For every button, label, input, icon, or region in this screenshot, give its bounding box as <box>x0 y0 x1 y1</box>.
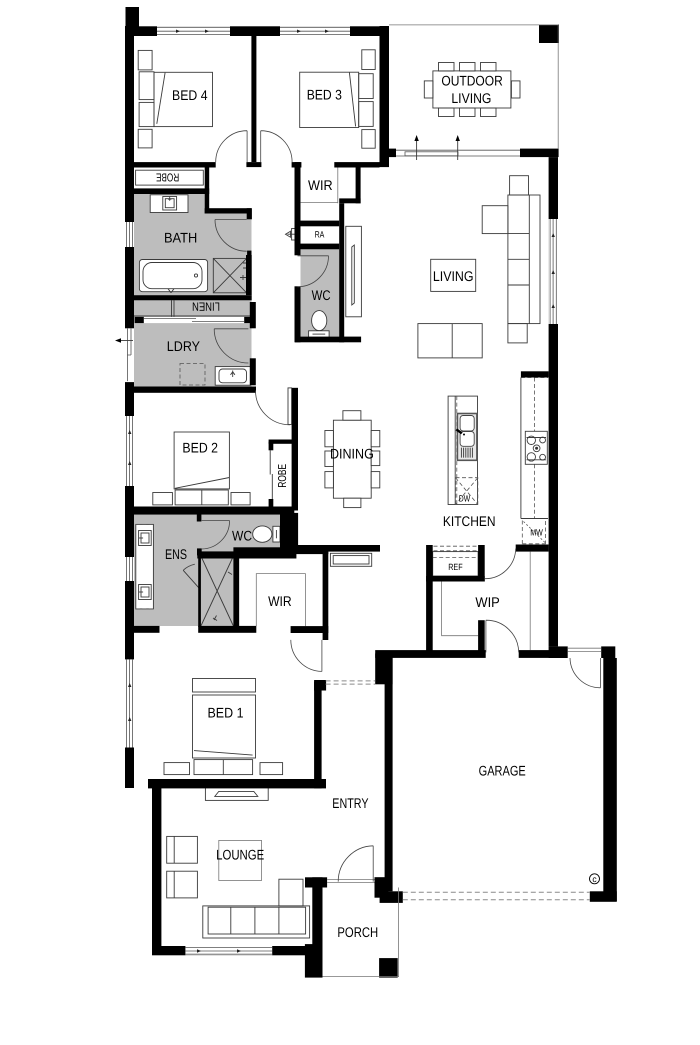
svg-text:KITCHEN: KITCHEN <box>443 513 496 529</box>
svg-text:LOUNGE: LOUNGE <box>216 846 264 862</box>
svg-text:DW: DW <box>459 493 471 503</box>
svg-text:ENTRY: ENTRY <box>332 795 369 811</box>
svg-text:DINING: DINING <box>330 445 374 461</box>
svg-text:WIP: WIP <box>475 594 499 610</box>
svg-text:ROBE: ROBE <box>156 171 179 183</box>
svg-text:LIVING: LIVING <box>451 90 491 106</box>
svg-text:WIR: WIR <box>268 593 292 609</box>
svg-text:BED 1: BED 1 <box>208 705 244 721</box>
svg-text:REF: REF <box>448 562 463 572</box>
svg-text:LIVING: LIVING <box>433 268 474 284</box>
svg-text:BED 2: BED 2 <box>182 440 218 456</box>
svg-text:GARAGE: GARAGE <box>479 763 526 779</box>
svg-text:RA: RA <box>315 230 325 240</box>
svg-text:WC: WC <box>312 287 331 303</box>
svg-text:BED 3: BED 3 <box>307 87 342 103</box>
svg-text:WC: WC <box>232 528 252 544</box>
svg-text:ENS: ENS <box>165 546 187 562</box>
svg-text:WIR: WIR <box>308 177 333 193</box>
svg-text:LDRY: LDRY <box>167 338 201 354</box>
svg-text:ROBE: ROBE <box>277 464 289 488</box>
svg-text:MW: MW <box>530 527 543 537</box>
svg-text:BED 4: BED 4 <box>172 87 208 103</box>
svg-text:OUTDOOR: OUTDOOR <box>441 73 503 89</box>
svg-text:PORCH: PORCH <box>337 924 378 940</box>
svg-text:LINEN: LINEN <box>192 300 220 314</box>
svg-text:BATH: BATH <box>164 229 197 245</box>
